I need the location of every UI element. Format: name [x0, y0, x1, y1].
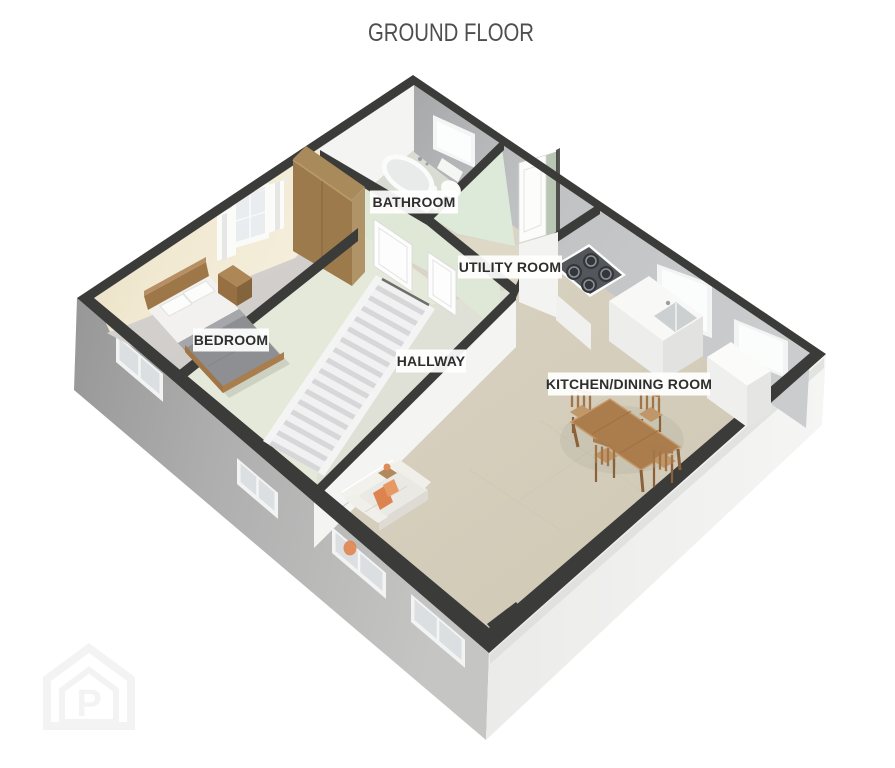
svg-text:KITCHEN/DINING ROOM: KITCHEN/DINING ROOM	[546, 376, 712, 392]
svg-text:BEDROOM: BEDROOM	[194, 332, 269, 348]
svg-text:P: P	[76, 683, 101, 725]
svg-text:BATHROOM: BATHROOM	[373, 194, 456, 210]
svg-text:UTILITY ROOM: UTILITY ROOM	[459, 259, 561, 275]
svg-text:GROUND FLOOR: GROUND FLOOR	[368, 19, 534, 47]
svg-text:HALLWAY: HALLWAY	[397, 353, 466, 369]
